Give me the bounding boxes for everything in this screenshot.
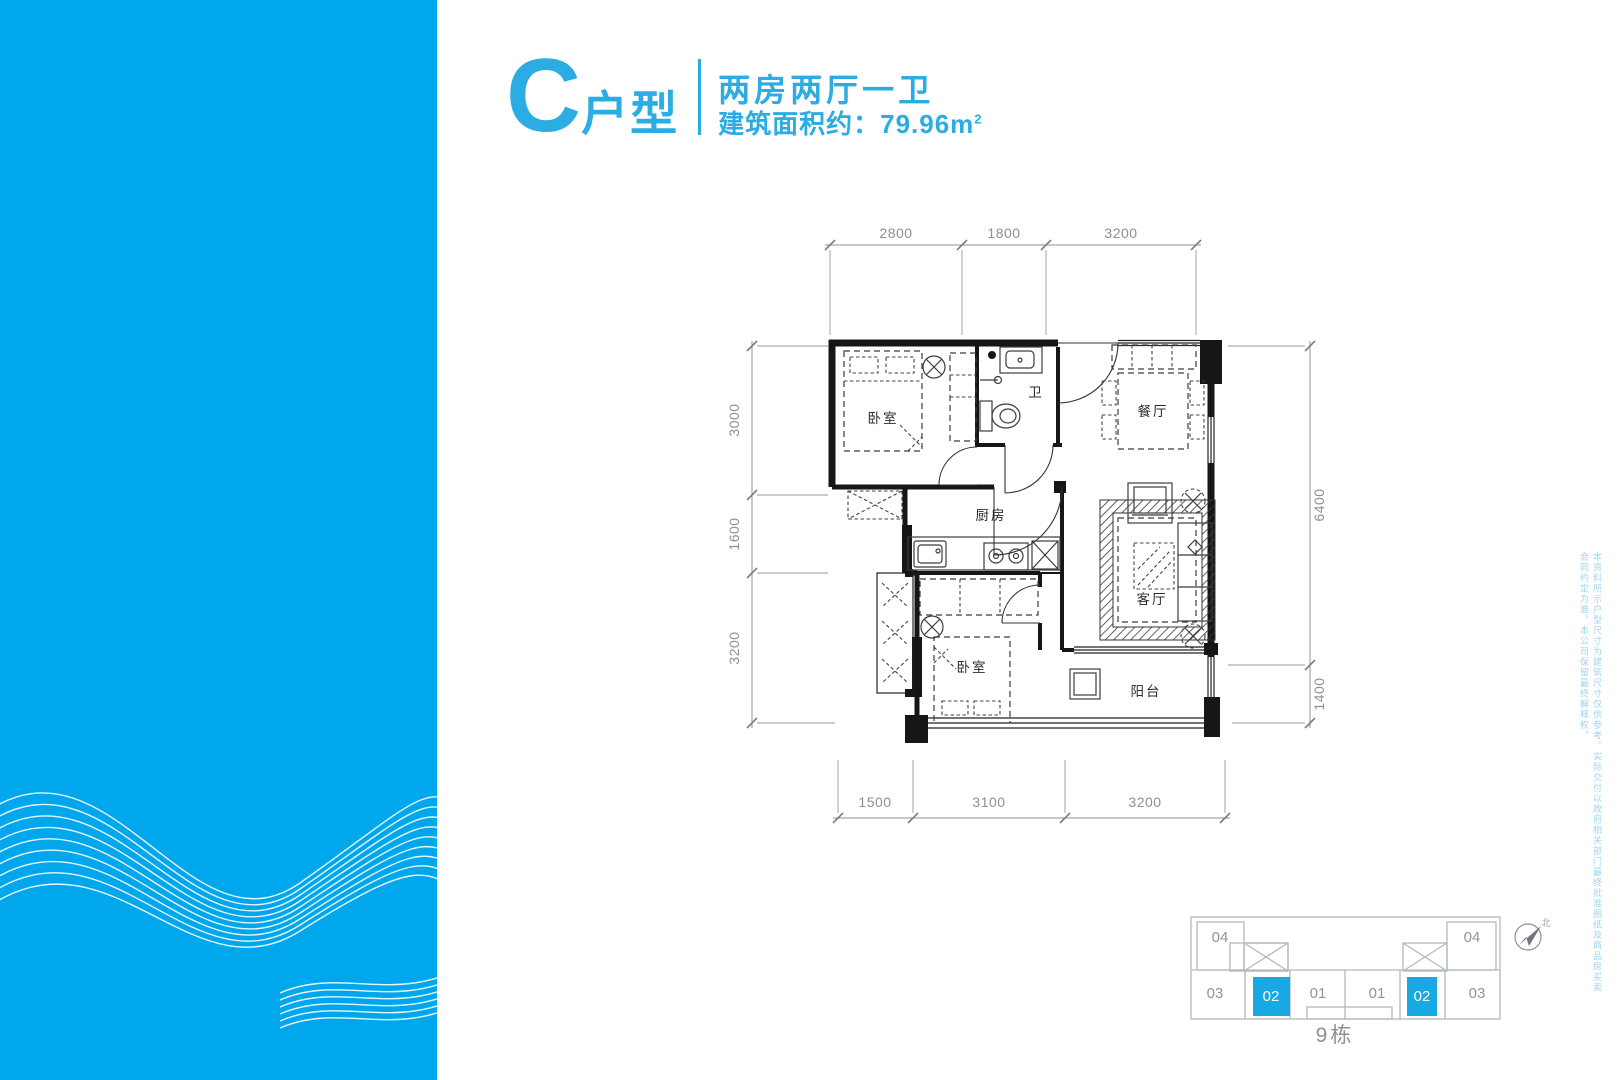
unit-02-right: 02 — [1414, 988, 1431, 1005]
room-label-kitchen: 厨房 — [976, 508, 1007, 523]
room-label-bedroom-1: 卧室 — [868, 410, 899, 426]
title-divider — [698, 59, 701, 135]
unit-02-left: 02 — [1263, 988, 1280, 1005]
bay-window — [877, 569, 913, 697]
dim-bottom-1: 1500 — [858, 794, 891, 810]
furniture — [844, 345, 1215, 723]
dim-left-3: 3200 — [726, 631, 742, 664]
building-number: 9栋 — [1316, 1024, 1355, 1047]
blue-side-band — [0, 0, 437, 1080]
unit-01-right: 01 — [1369, 985, 1386, 1002]
unit-04-left: 04 — [1212, 929, 1229, 946]
keyplan-labels: 04 03 02 01 01 02 03 04 9栋 — [1207, 929, 1486, 1047]
page: C 户型 两房两厅一卫 建筑面积约：79.96m2 2800 18 — [0, 0, 1620, 1080]
dim-left-1: 3000 — [726, 403, 742, 436]
disclaimer-text: 本资料所示户型尺寸为建筑尺寸仅供参考，实际交付以政府相关部门最终批准图纸及商品房… — [1578, 552, 1604, 997]
dim-right-2: 1400 — [1311, 677, 1327, 710]
building-key-plan: 04 03 02 01 01 02 03 04 9栋 北 — [1185, 908, 1585, 1048]
dim-left-2: 1600 — [726, 517, 742, 550]
floor-plan: 2800 1800 3200 3000 1600 3200 6400 — [650, 195, 1350, 855]
unit-suffix: 户型 — [581, 92, 679, 137]
room-label-bedroom-2: 卧室 — [957, 659, 988, 675]
room-label-balcony: 阳台 — [1131, 684, 1162, 699]
north-label: 北 — [1541, 918, 1550, 928]
dim-bottom-3: 3200 — [1128, 794, 1161, 810]
unit-03-left: 03 — [1207, 985, 1224, 1002]
dim-bottom-2: 3100 — [972, 794, 1005, 810]
room-label-bathroom: 卫 — [1028, 385, 1044, 400]
area-text: 建筑面积约：79.96m2 — [718, 111, 982, 137]
dim-top-3: 3200 — [1104, 225, 1137, 241]
compass-icon: 北 — [1515, 918, 1551, 950]
title-right: 两房两厅一卫 建筑面积约：79.96m2 — [718, 74, 982, 137]
area-superscript: 2 — [974, 111, 982, 126]
unit-letter: C — [506, 56, 579, 137]
room-label-living: 客厅 — [1137, 591, 1168, 607]
unit-01-left: 01 — [1310, 985, 1327, 1002]
unit-03-right: 03 — [1469, 985, 1486, 1002]
layout-description: 两房两厅一卫 — [718, 74, 982, 106]
area-label: 建筑面积约：79.96m — [718, 109, 974, 139]
wave-pattern-icon — [0, 755, 437, 1055]
title-block: C 户型 两房两厅一卫 建筑面积约：79.96m2 — [506, 56, 983, 137]
dim-top-1: 2800 — [879, 225, 912, 241]
dim-top-2: 1800 — [987, 225, 1020, 241]
keyplan-outline — [1191, 917, 1500, 1019]
room-label-dining: 餐厅 — [1138, 404, 1169, 419]
dimension-lines: 2800 1800 3200 3000 1600 3200 6400 — [726, 225, 1327, 823]
walls — [829, 340, 1222, 743]
dim-right-1: 6400 — [1311, 488, 1327, 521]
unit-04-right: 04 — [1464, 929, 1481, 946]
